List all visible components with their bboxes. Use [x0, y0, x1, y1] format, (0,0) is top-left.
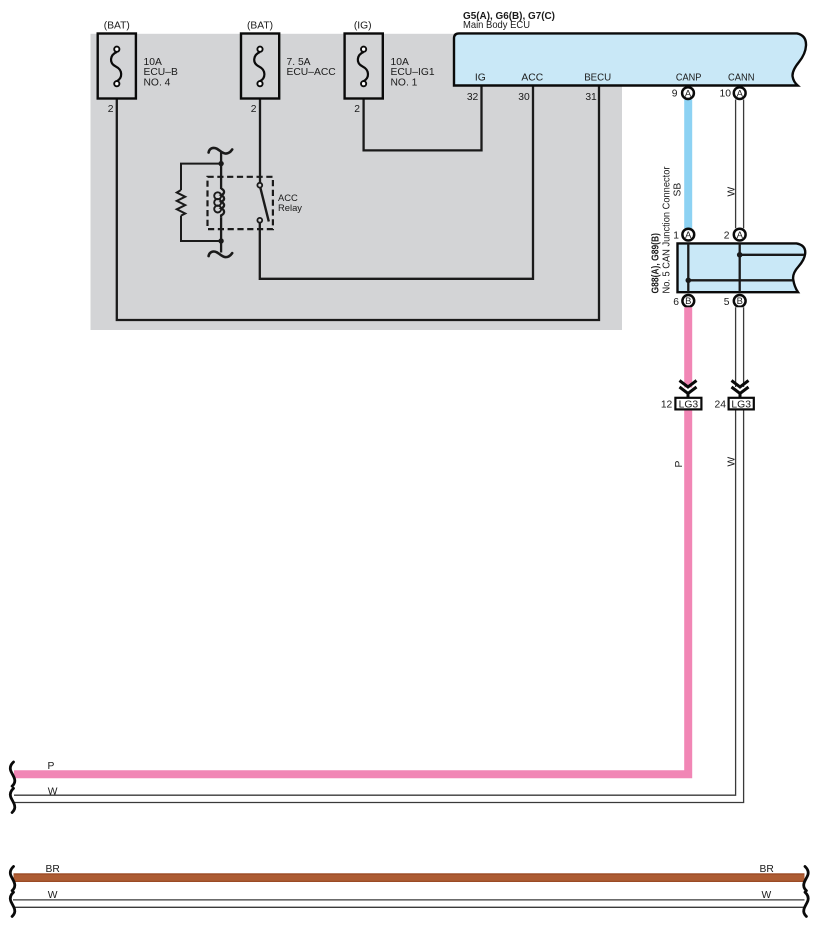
svg-text:32: 32: [467, 92, 479, 103]
svg-text:Main Body ECU: Main Body ECU: [463, 20, 530, 31]
svg-text:31: 31: [585, 92, 597, 103]
svg-text:P: P: [48, 761, 55, 772]
svg-text:9: 9: [672, 88, 678, 99]
svg-text:BR: BR: [46, 864, 60, 875]
svg-text:G88(A), G89(B): G88(A), G89(B): [651, 233, 662, 294]
svg-text:ECU–ACC: ECU–ACC: [287, 67, 337, 78]
svg-text:Relay: Relay: [278, 202, 302, 213]
svg-text:A: A: [685, 87, 692, 98]
svg-text:LG3: LG3: [731, 400, 751, 411]
svg-text:W: W: [727, 457, 738, 467]
svg-text:12: 12: [661, 400, 673, 411]
svg-text:10: 10: [720, 88, 732, 99]
svg-text:IG: IG: [475, 72, 486, 83]
svg-text:B: B: [737, 295, 743, 306]
svg-text:2: 2: [108, 104, 114, 115]
svg-text:ACC: ACC: [521, 72, 543, 83]
svg-text:W: W: [48, 890, 58, 901]
svg-text:5: 5: [724, 297, 730, 308]
svg-text:A: A: [737, 229, 744, 240]
svg-text:SB: SB: [673, 183, 684, 197]
svg-text:W: W: [762, 890, 772, 901]
svg-text:2: 2: [354, 104, 360, 115]
svg-text:(BAT): (BAT): [247, 21, 273, 32]
svg-text:BECU: BECU: [584, 72, 611, 83]
svg-text:P: P: [674, 461, 685, 468]
svg-text:2: 2: [251, 104, 257, 115]
svg-text:B: B: [685, 295, 691, 306]
svg-text:NO. 4: NO. 4: [144, 77, 171, 88]
svg-text:2: 2: [724, 231, 730, 242]
svg-text:No. 5 CAN Junction Connector: No. 5 CAN Junction Connector: [662, 166, 673, 294]
svg-text:(IG): (IG): [354, 21, 372, 32]
svg-text:A: A: [685, 229, 692, 240]
svg-text:30: 30: [518, 92, 530, 103]
svg-text:A: A: [737, 87, 744, 98]
svg-text:BR: BR: [760, 864, 774, 875]
svg-text:W: W: [727, 187, 738, 197]
svg-text:(BAT): (BAT): [104, 21, 130, 32]
svg-text:24: 24: [715, 400, 727, 411]
svg-text:CANN: CANN: [728, 72, 755, 83]
svg-text:W: W: [48, 787, 58, 798]
svg-text:6: 6: [673, 297, 679, 308]
svg-text:1: 1: [673, 231, 679, 242]
svg-text:CANP: CANP: [676, 72, 702, 83]
svg-text:NO. 1: NO. 1: [391, 77, 418, 88]
svg-text:LG3: LG3: [679, 400, 699, 411]
